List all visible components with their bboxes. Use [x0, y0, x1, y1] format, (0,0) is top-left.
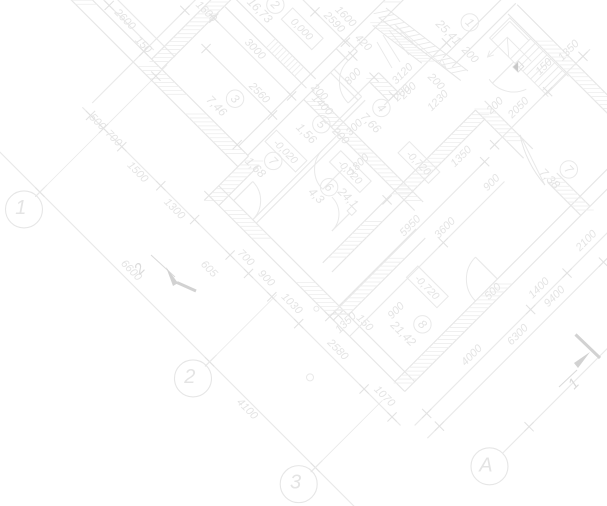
svg-text:3: 3	[290, 472, 301, 494]
svg-text:A: A	[478, 454, 492, 476]
svg-text:2: 2	[183, 366, 195, 388]
svg-text:1: 1	[15, 197, 26, 219]
